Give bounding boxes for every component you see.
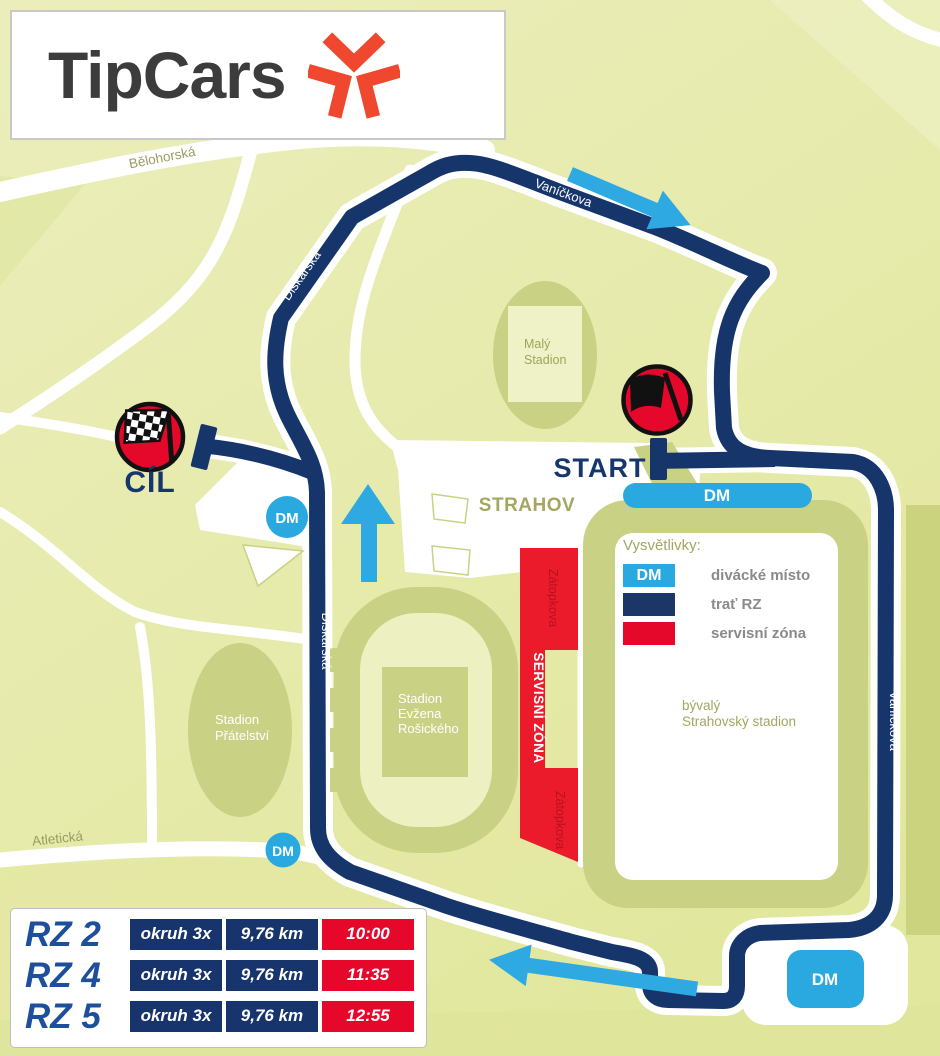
laps-cell: okruh 3x: [130, 1001, 222, 1032]
logo-box: TipCars: [10, 10, 506, 140]
time-cell: 10:00: [322, 919, 414, 950]
street-zatopkova-top: Zátopkova: [546, 569, 560, 627]
legend-service-label: servisní zóna: [711, 625, 806, 642]
maly-stadion-line1: Malý: [524, 337, 551, 351]
stage-name: RZ 5: [25, 999, 126, 1034]
rosickeho-line3: Rošického: [398, 721, 459, 736]
distance-cell: 9,76 km: [226, 919, 318, 950]
tipcars-star-icon: [308, 31, 400, 119]
distance-cell: 9,76 km: [226, 960, 318, 991]
strahov-label: STRAHOV: [479, 495, 575, 516]
table-row: RZ 2 okruh 3x 9,76 km 10:00: [25, 918, 426, 950]
byvaly-line2: Strahovský stadion: [682, 714, 796, 729]
legend-dm-label: divácké místo: [711, 567, 810, 584]
laps-cell: okruh 3x: [130, 919, 222, 950]
legend-route-swatch: [623, 593, 675, 616]
time-cell: 11:35: [322, 960, 414, 991]
rosickeho-line1: Stadion: [398, 691, 442, 706]
finish-flag-icon: [117, 403, 183, 470]
table-row: RZ 5 okruh 3x 9,76 km 12:55: [25, 1000, 426, 1032]
time-cell: 12:55: [322, 1001, 414, 1032]
dm-circle-mid-label: DM: [275, 510, 298, 527]
byvaly-line1: bývalý: [682, 698, 721, 713]
legend-dm-swatch: DM: [623, 564, 675, 587]
finish-label: CÍL: [124, 465, 175, 499]
laps-cell: okruh 3x: [130, 960, 222, 991]
rosickeho-line2: Evžena: [398, 706, 442, 721]
table-row: RZ 4 okruh 3x 9,76 km 11:35: [25, 959, 426, 991]
maly-stadion-line2: Stadion: [524, 353, 566, 367]
legend-row-spectator: DM divácké místo: [621, 564, 833, 587]
stage-name: RZ 4: [25, 958, 126, 993]
legend-row-route: trať RZ: [621, 593, 833, 616]
legend-row-service: servisní zóna: [621, 622, 833, 645]
street-diskarska-mid: Diskařská: [319, 612, 334, 670]
legend-title: Vysvětlivky:: [623, 537, 833, 554]
start-label: START: [554, 453, 647, 483]
pratelstvi-line2: Přátelství: [215, 728, 270, 743]
legend-service-swatch: [623, 622, 675, 645]
dm-box-bottom-label: DM: [812, 970, 838, 989]
street-zatopkova-bottom: Zátopkova: [553, 791, 567, 849]
brand-name: TipCars: [48, 37, 286, 113]
legend: Vysvětlivky: DM divácké místo trať RZ se…: [621, 537, 833, 651]
legend-route-label: trať RZ: [711, 596, 762, 613]
stage-schedule-table: RZ 2 okruh 3x 9,76 km 10:00 RZ 4 okruh 3…: [10, 908, 427, 1048]
street-vanickova-right: Vaníčkova: [887, 691, 902, 752]
course-map: DM DM DM DM Bělohorská Vaníčkova Diskařs…: [0, 0, 940, 1056]
rally-course-map-page: DM DM DM DM Bělohorská Vaníčkova Diskařs…: [0, 0, 940, 1056]
stage-name: RZ 2: [25, 917, 126, 952]
dm-bar-label: DM: [704, 486, 730, 505]
start-flag-icon: [624, 367, 691, 434]
start-line-bar: [650, 438, 667, 480]
dm-circle-atleticka-label: DM: [272, 843, 294, 859]
service-zone-label: SERVISNÍ ZÓNA: [531, 652, 546, 763]
start-spur: [651, 459, 775, 461]
pratelstvi-line1: Stadion: [215, 712, 259, 727]
distance-cell: 9,76 km: [226, 1001, 318, 1032]
